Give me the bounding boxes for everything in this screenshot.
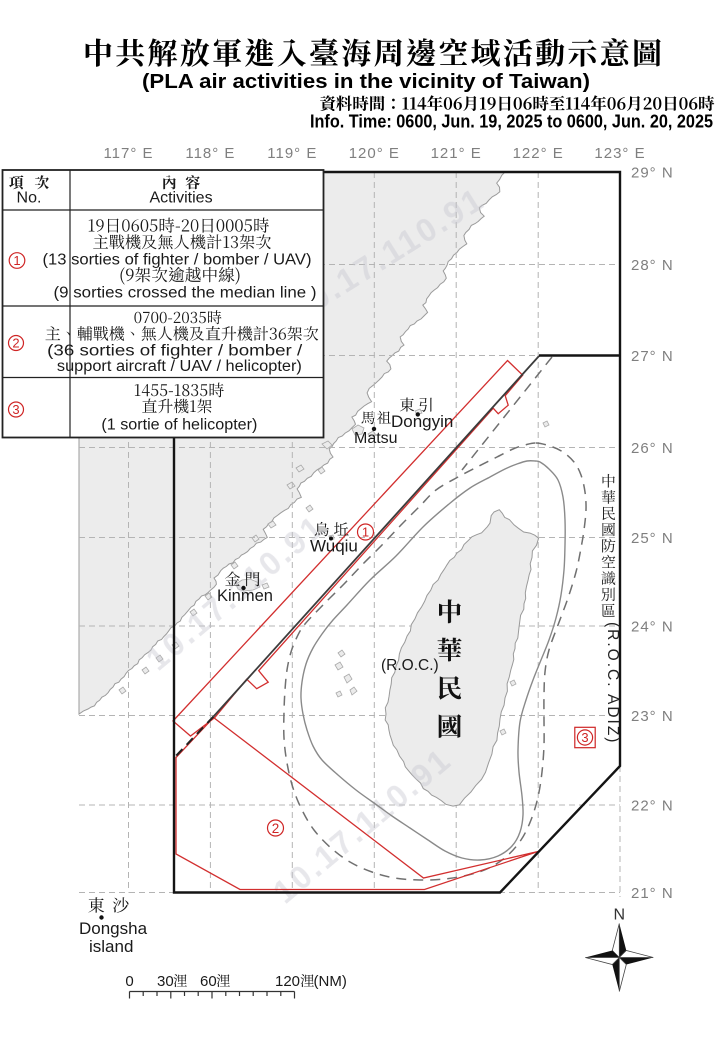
svg-text:26° N: 26° N: [631, 440, 674, 457]
svg-text:1: 1: [13, 253, 20, 268]
svg-text:Dongsha: Dongsha: [79, 919, 148, 938]
svg-text:117° E: 117° E: [103, 145, 153, 162]
svg-text:120: 120: [275, 973, 300, 990]
svg-text:22° N: 22° N: [631, 798, 674, 815]
svg-text:119° E: 119° E: [267, 145, 317, 162]
svg-text:(9 sorties crossed the median: (9 sorties crossed the median line ): [54, 285, 317, 302]
svg-text:2: 2: [12, 336, 19, 351]
svg-text:Info. Time: 0600, Jun. 19, 202: Info. Time: 0600, Jun. 19, 2025 to 0600,…: [310, 112, 713, 132]
svg-text:(36 sorties of fighter / bombe: (36 sorties of fighter / bomber /: [47, 343, 303, 360]
svg-text:121° E: 121° E: [431, 145, 482, 162]
svg-text:29° N: 29° N: [631, 165, 674, 182]
svg-text:(13 sorties of fighter / bombe: (13 sorties of fighter / bomber / UAV): [43, 252, 312, 269]
svg-text:24° N: 24° N: [631, 619, 674, 636]
svg-text:(R.O.C.): (R.O.C.): [381, 657, 439, 674]
svg-text:island: island: [89, 937, 133, 956]
svg-text:Activities: Activities: [149, 190, 212, 207]
svg-text:2: 2: [272, 821, 280, 836]
svg-text:60: 60: [200, 973, 217, 990]
svg-text:Dongyin: Dongyin: [391, 412, 453, 431]
svg-text:30: 30: [157, 973, 174, 990]
svg-text:(NM): (NM): [314, 973, 347, 990]
svg-text:Kinmen: Kinmen: [217, 587, 273, 605]
svg-text:Wuqiu: Wuqiu: [310, 537, 358, 556]
svg-text:3: 3: [581, 730, 588, 745]
svg-text:(1 sortie of helicopter): (1 sortie of helicopter): [101, 417, 257, 434]
svg-text:No.: No.: [17, 190, 42, 207]
svg-text:(PLA air activities in the vic: (PLA air activities in the vicinity of T…: [142, 70, 590, 93]
svg-text:122° E: 122° E: [513, 145, 564, 162]
svg-text:21° N: 21° N: [631, 885, 674, 902]
svg-text:support aircraft / UAV / helic: support aircraft / UAV / helicopter): [57, 358, 302, 375]
svg-text:3: 3: [12, 402, 19, 417]
svg-text:1: 1: [362, 525, 369, 540]
svg-text:28° N: 28° N: [631, 257, 674, 274]
svg-text:N: N: [614, 907, 626, 924]
svg-text:25° N: 25° N: [631, 530, 674, 547]
svg-text:27° N: 27° N: [631, 348, 674, 365]
svg-text:118° E: 118° E: [185, 145, 235, 162]
svg-text:(R.O.C. ADIZ): (R.O.C. ADIZ): [604, 622, 621, 744]
svg-text:Matsu: Matsu: [354, 430, 398, 447]
svg-text:120° E: 120° E: [349, 145, 400, 162]
svg-text:123° E: 123° E: [594, 145, 645, 162]
svg-text:23° N: 23° N: [631, 708, 674, 725]
svg-text:0: 0: [125, 973, 133, 990]
